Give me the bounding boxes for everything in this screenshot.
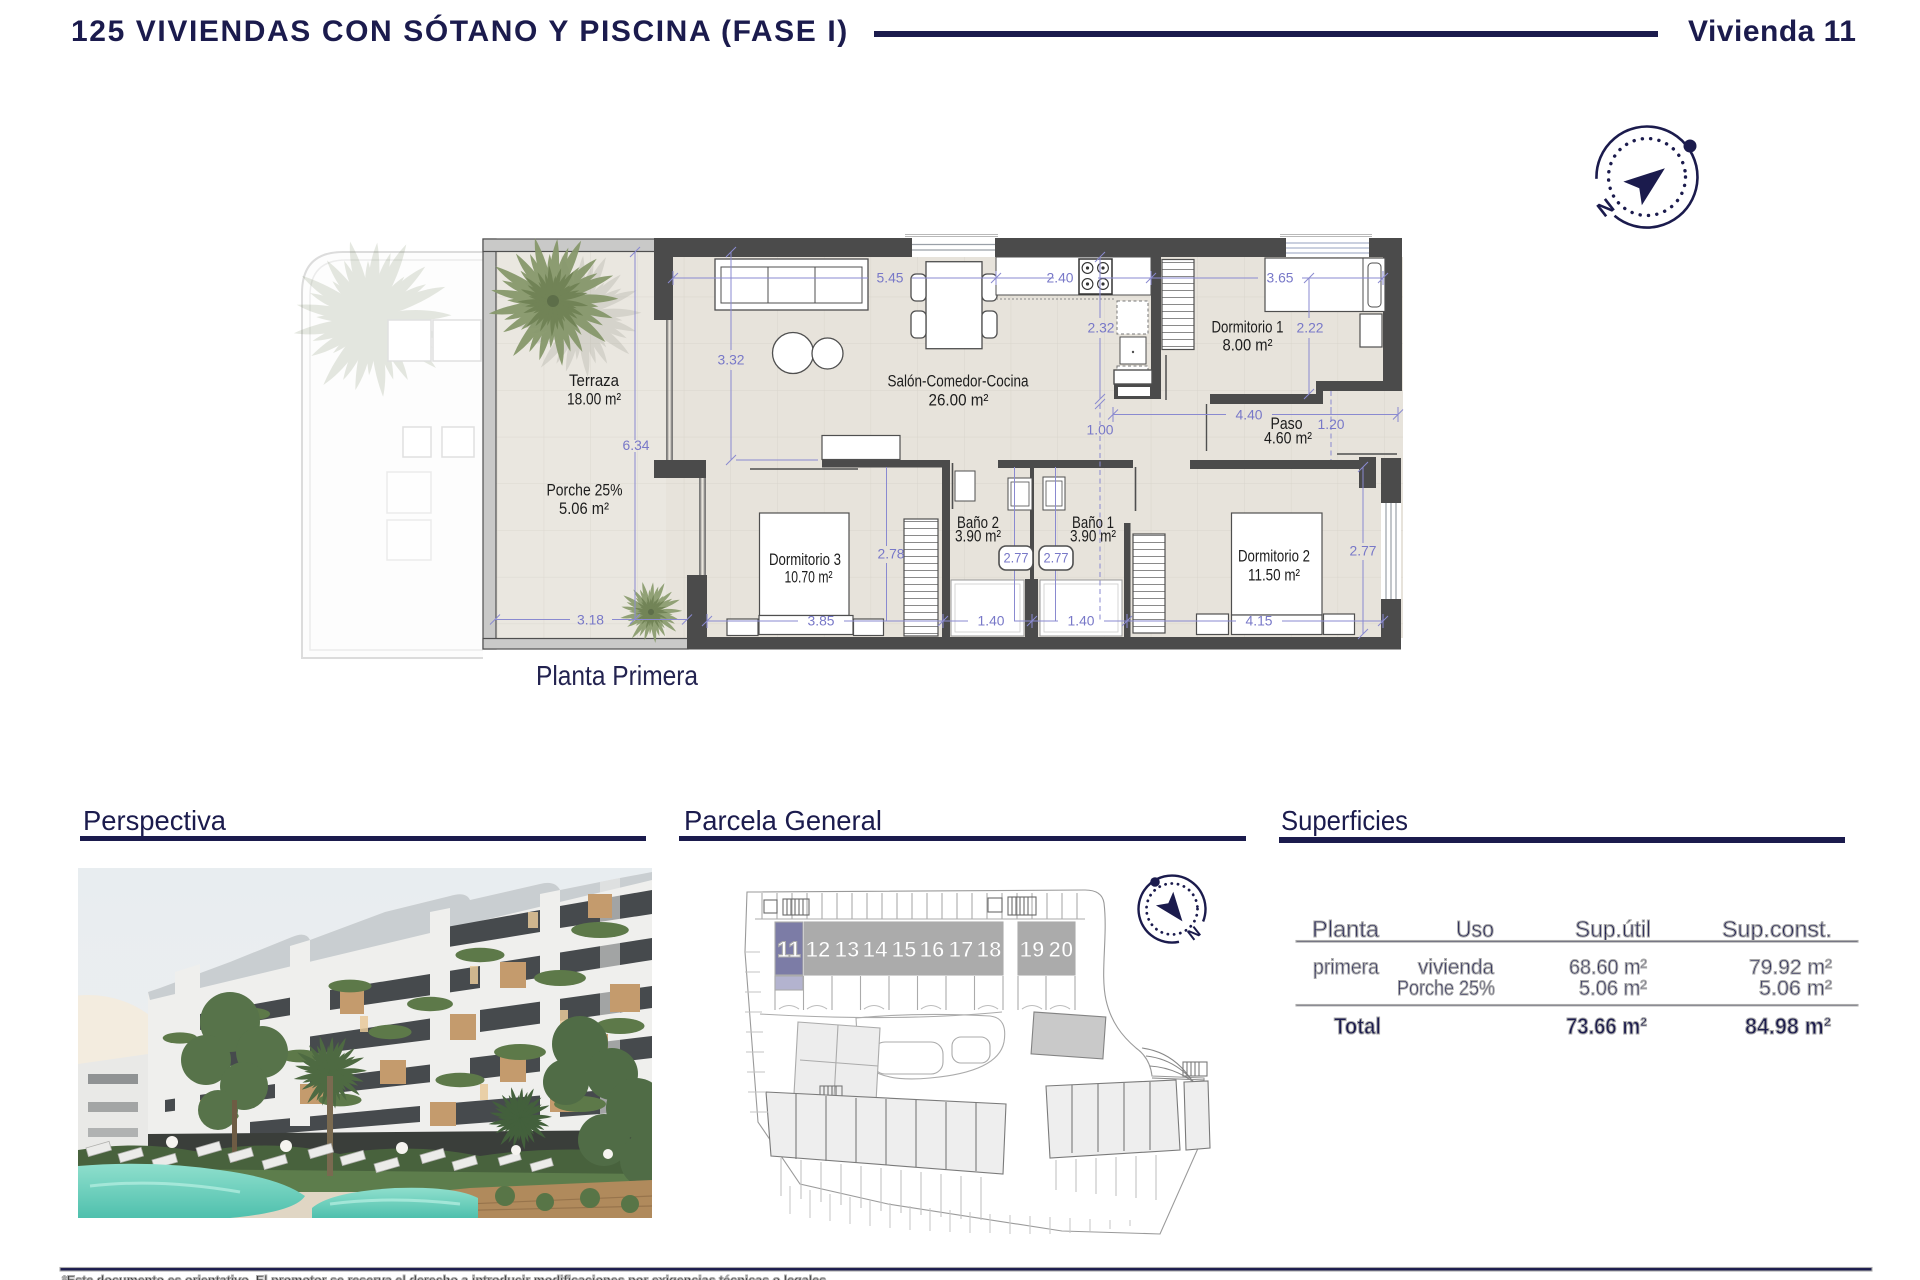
svg-text:20: 20 (1048, 937, 1073, 962)
svg-text:2.77: 2.77 (1044, 551, 1069, 566)
svg-text:Total: Total (1334, 1013, 1381, 1039)
svg-text:12: 12 (805, 937, 830, 962)
svg-text:2.77: 2.77 (1350, 544, 1377, 559)
svg-text:2.32: 2.32 (1088, 321, 1115, 336)
svg-text:vivienda: vivienda (1418, 956, 1494, 979)
svg-text:Porche 25%: Porche 25% (547, 481, 623, 500)
svg-text:2.40: 2.40 (1047, 271, 1074, 286)
svg-text:68.60 m²: 68.60 m² (1569, 956, 1647, 979)
svg-text:3.90 m²: 3.90 m² (1070, 527, 1116, 546)
svg-text:4.60 m²: 4.60 m² (1264, 429, 1312, 448)
svg-text:18: 18 (976, 937, 1001, 962)
svg-text:5.06 m²: 5.06 m² (1579, 977, 1647, 1000)
svg-text:4.15: 4.15 (1246, 614, 1273, 629)
svg-text:5.06 m²: 5.06 m² (559, 499, 609, 518)
svg-text:Perspectiva: Perspectiva (83, 805, 226, 836)
svg-text:8.00 m²: 8.00 m² (1223, 336, 1273, 355)
svg-text:2.22: 2.22 (1297, 321, 1324, 336)
svg-text:2.77: 2.77 (1004, 551, 1029, 566)
svg-text:1.20: 1.20 (1318, 417, 1345, 432)
svg-text:6.34: 6.34 (623, 438, 650, 453)
svg-text:1.40: 1.40 (1068, 614, 1095, 629)
svg-text:Uso: Uso (1456, 916, 1494, 942)
svg-text:Porche 25%: Porche 25% (1397, 977, 1495, 1000)
svg-text:17: 17 (948, 937, 973, 962)
svg-text:Planta Primera: Planta Primera (536, 660, 698, 691)
svg-text:1.00: 1.00 (1087, 423, 1114, 438)
svg-text:13: 13 (834, 937, 859, 962)
svg-text:Sup.útil: Sup.útil (1575, 916, 1651, 942)
svg-text:18.00 m²: 18.00 m² (567, 390, 621, 409)
svg-text:3.90 m²: 3.90 m² (955, 527, 1001, 546)
svg-text:3.85: 3.85 (808, 614, 835, 629)
svg-text:1.40: 1.40 (978, 614, 1005, 629)
svg-text:16: 16 (919, 937, 944, 962)
svg-text:Parcela General: Parcela General (684, 805, 882, 836)
svg-text:3.32: 3.32 (718, 353, 745, 368)
svg-text:10.70 m²: 10.70 m² (785, 568, 833, 587)
svg-text:Dormitorio 3: Dormitorio 3 (769, 550, 841, 569)
svg-text:15: 15 (891, 937, 916, 962)
svg-text:3.18: 3.18 (577, 613, 604, 628)
svg-text:26.00 m²: 26.00 m² (929, 391, 989, 410)
svg-text:Salón-Comedor-Cocina: Salón-Comedor-Cocina (888, 372, 1029, 391)
svg-text:11.50 m²: 11.50 m² (1248, 566, 1300, 585)
svg-text:3.65: 3.65 (1267, 271, 1294, 286)
svg-text:Superficies: Superficies (1281, 805, 1408, 836)
svg-text:2.78: 2.78 (878, 547, 905, 562)
svg-text:14: 14 (862, 937, 888, 962)
svg-text:*Este documento es orientativo: *Este documento es orientativo. El promo… (62, 1274, 826, 1280)
svg-text:Planta: Planta (1312, 916, 1379, 942)
svg-text:5.06 m²: 5.06 m² (1759, 977, 1832, 1000)
svg-text:73.66 m²: 73.66 m² (1566, 1013, 1647, 1039)
svg-text:Terraza: Terraza (569, 371, 619, 390)
svg-text:primera: primera (1313, 956, 1379, 979)
svg-text:79.92 m²: 79.92 m² (1749, 956, 1832, 979)
svg-text:Dormitorio 1: Dormitorio 1 (1212, 318, 1284, 337)
svg-text:Dormitorio 2: Dormitorio 2 (1238, 547, 1310, 566)
svg-text:4.40: 4.40 (1236, 408, 1263, 423)
svg-text:N: N (1185, 924, 1205, 945)
svg-text:84.98 m²: 84.98 m² (1745, 1013, 1831, 1039)
svg-text:11: 11 (777, 937, 801, 962)
svg-text:Sup.const.: Sup.const. (1722, 916, 1832, 942)
svg-text:19: 19 (1019, 937, 1044, 962)
svg-text:5.45: 5.45 (877, 271, 904, 286)
